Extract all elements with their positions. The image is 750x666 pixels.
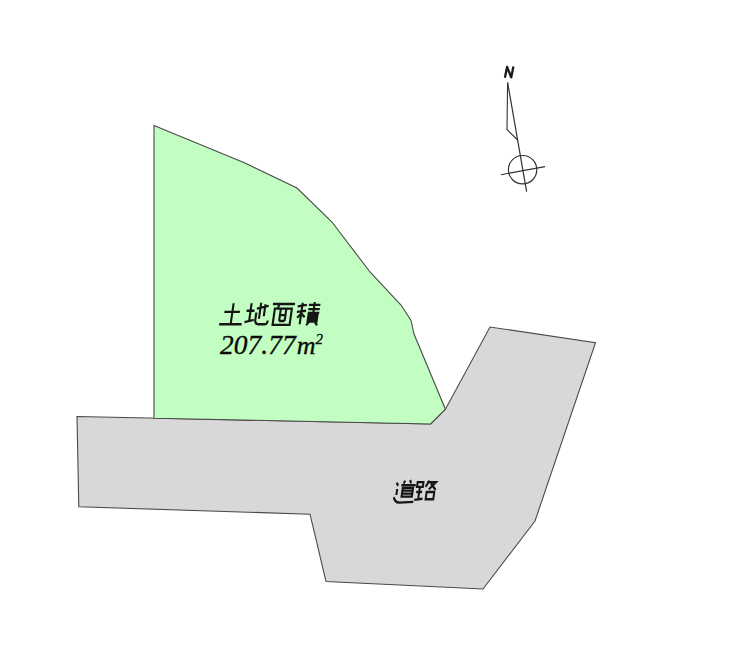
svg-text:207.77m2: 207.77m2 <box>220 329 323 360</box>
